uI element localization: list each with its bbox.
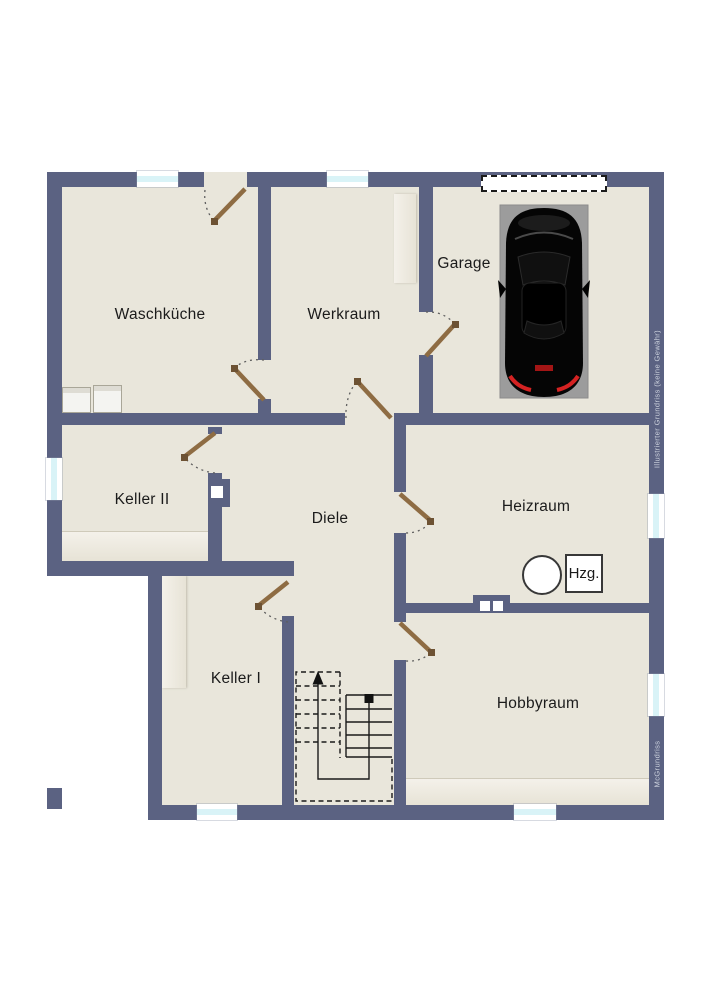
watermark-bottom-right: McGrundriss bbox=[653, 741, 662, 788]
door-diele-keller2 bbox=[181, 433, 215, 473]
room-label-waschkueche: Waschküche bbox=[115, 306, 206, 324]
room-label-garage: Garage bbox=[437, 255, 490, 273]
door-diele-hobbyraum bbox=[400, 623, 435, 661]
door-waschkueche-werkraum bbox=[231, 360, 264, 400]
door-diele-keller1 bbox=[255, 582, 288, 622]
staircase bbox=[296, 671, 392, 801]
room-label-heizraum: Heizraum bbox=[502, 498, 570, 516]
room-label-diele: Diele bbox=[312, 510, 349, 528]
door-waschkueche-exterior bbox=[205, 189, 245, 225]
door-diele-heizraum bbox=[400, 494, 434, 533]
door-werkraum-diele bbox=[346, 378, 391, 418]
watermark-right: Illustrierter Grundriss (keine Gewähr) bbox=[653, 330, 662, 468]
car-top-view bbox=[498, 205, 590, 398]
floor-plan: Hzg. bbox=[0, 0, 707, 1000]
room-label-keller1: Keller I bbox=[211, 670, 261, 688]
door-werkraum-garage bbox=[426, 312, 459, 356]
room-label-hobbyraum: Hobbyraum bbox=[497, 695, 579, 713]
symbols-overlay bbox=[0, 0, 707, 1000]
room-label-werkraum: Werkraum bbox=[307, 306, 380, 324]
room-label-keller2: Keller II bbox=[115, 491, 170, 509]
